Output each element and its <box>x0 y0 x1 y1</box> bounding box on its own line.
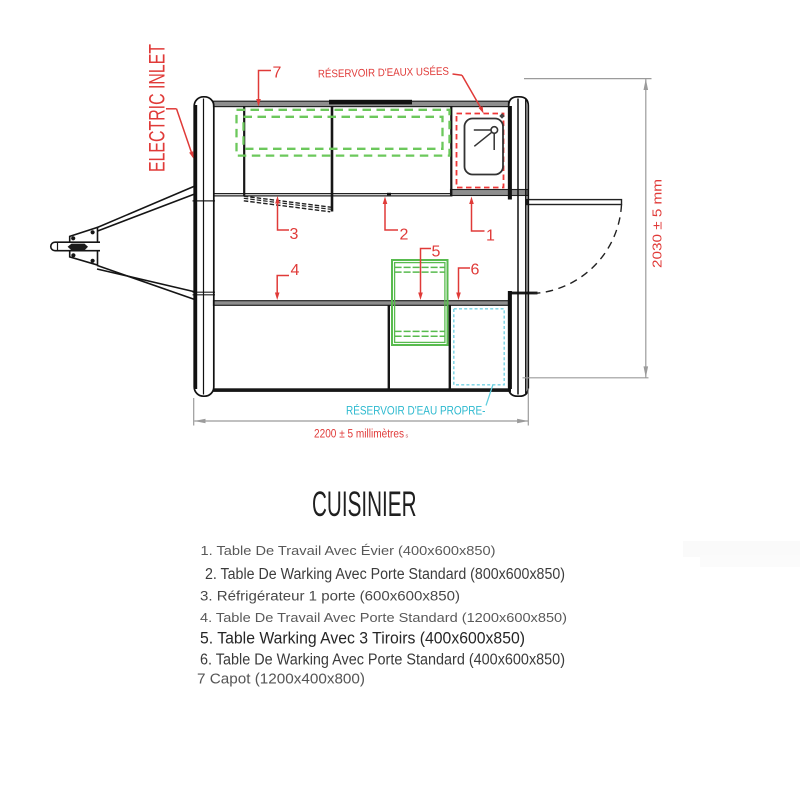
svg-text:2200 ± 5 millimètres: 2200 ± 5 millimètres <box>314 429 404 441</box>
svg-text:3. Réfrigérateur 1 porte (600x: 3. Réfrigérateur 1 porte (600x600x850) <box>200 589 460 604</box>
svg-text:2: 2 <box>400 227 409 244</box>
svg-text:ELECTRIC INLET: ELECTRIC INLET <box>145 44 170 172</box>
svg-text:7: 7 <box>273 65 282 82</box>
svg-text:7 Capot (1200x400x800): 7 Capot (1200x400x800) <box>197 671 365 688</box>
svg-text:2030 ± 5 mm: 2030 ± 5 mm <box>650 179 665 268</box>
svg-text:6: 6 <box>471 262 480 279</box>
svg-text:4. Table De Travail Avec Porte: 4. Table De Travail Avec Porte Standard … <box>200 610 567 625</box>
svg-text:CUISINIER: CUISINIER <box>312 485 417 524</box>
svg-text:RÉSERVOIR D'EAUX USÉES: RÉSERVOIR D'EAUX USÉES <box>318 65 449 81</box>
svg-text:6. Table De Warking Avec Porte: 6. Table De Warking Avec Porte Standard … <box>200 652 565 669</box>
svg-text:3: 3 <box>290 226 299 243</box>
svg-text:1: 1 <box>486 228 495 245</box>
svg-text:4: 4 <box>291 262 300 279</box>
svg-text:RÉSERVOIR D'EAU PROPRE-: RÉSERVOIR D'EAU PROPRE- <box>346 403 486 418</box>
svg-text:s: s <box>406 434 409 440</box>
svg-text:5: 5 <box>432 244 441 261</box>
svg-text:1. Table De Travail Avec Évier: 1. Table De Travail Avec Évier (400x600x… <box>201 543 496 558</box>
svg-text:2. Table De Warking Avec Porte: 2. Table De Warking Avec Porte Standard … <box>205 566 565 583</box>
svg-text:5. Table Warking Avec 3 Tiroir: 5. Table Warking Avec 3 Tiroirs (400x600… <box>200 629 525 648</box>
